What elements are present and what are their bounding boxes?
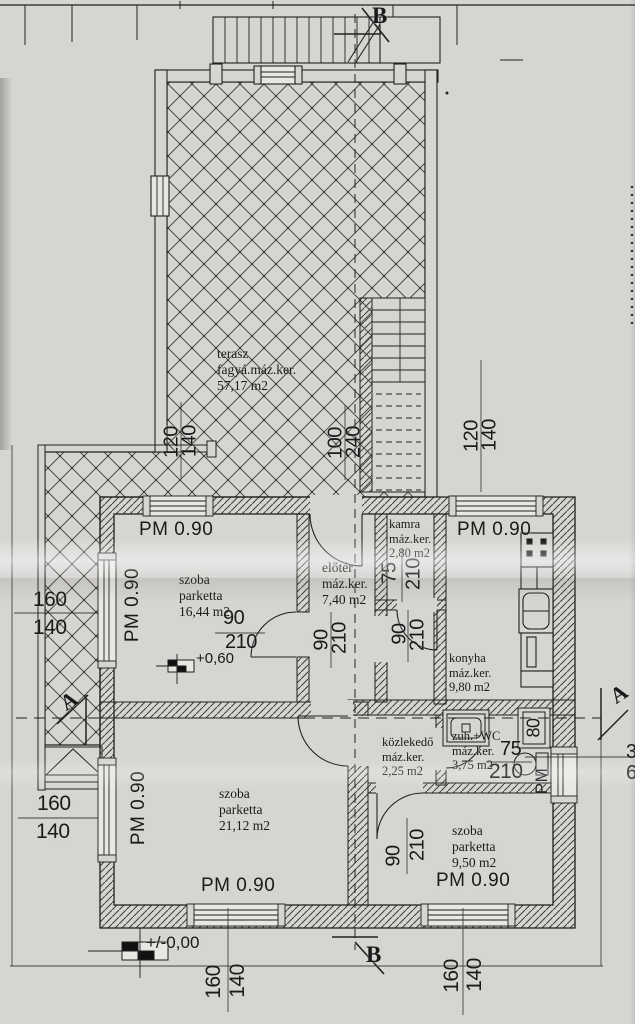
room-finish: máz.ker. — [322, 576, 368, 592]
parapet-label-left-lower: PM 0.90 — [128, 771, 150, 845]
edge-number-top: 3 — [626, 741, 635, 764]
room-area: 57,17 m2 — [217, 378, 296, 394]
level-marker-upper — [156, 654, 194, 684]
dim-240-entry: 240 — [343, 426, 366, 458]
room-area: 9,80 m2 — [449, 680, 491, 695]
dim-140-bottom-center: 140 — [226, 964, 250, 998]
garden-stairs — [360, 298, 425, 492]
parapet-label-right-short: PM — [532, 768, 552, 795]
room-label-kamra: kamra máz.ker. 2,80 m2 — [389, 517, 431, 561]
parapet-label-bottom-left: PM 0.90 — [201, 875, 275, 897]
room-area: 9,50 m2 — [452, 855, 496, 871]
dim-door-h-eloter: 210 — [329, 622, 352, 654]
room-label-eloter: előtér máz.ker. 7,40 m2 — [322, 560, 368, 608]
dim-basin-80: 80 — [524, 718, 545, 737]
room-label-kozlekedo: közlekedő máz.ker. 2,25 m2 — [382, 735, 433, 779]
room-name: konyha — [449, 651, 491, 666]
dim-160-left-lower: 160 — [37, 792, 71, 816]
room-area: 2,25 m2 — [382, 764, 433, 779]
room-finish: máz.ker. — [389, 532, 431, 547]
room-name: előtér — [322, 560, 368, 576]
room-area: 21,12 m2 — [219, 818, 270, 834]
dim-160-bottom-right: 160 — [440, 959, 464, 993]
level-label-upper: +0,60 — [196, 650, 234, 667]
dim-140-bottom-right: 140 — [463, 958, 487, 992]
dim-door-h-szoba-se: 210 — [407, 829, 430, 861]
room-label-terasz: terasz fagyá.máz.ker. 57,17 m2 — [217, 346, 296, 394]
room-finish: máz.ker. — [452, 744, 500, 759]
edge-number-bottom: 6 — [626, 762, 635, 785]
room-name: közlekedő — [382, 735, 433, 750]
room-name: terasz — [217, 346, 296, 362]
dim-door-w-szoba-nw: 90 — [223, 607, 244, 630]
room-name: szoba — [179, 572, 230, 588]
parapet-label-top-right: PM 0.90 — [457, 519, 531, 541]
dim-win-h-zuh: 210 — [489, 760, 523, 784]
dim-door-w-kamra: 75 — [379, 562, 402, 583]
top-stairs — [213, 17, 440, 63]
room-name: szoba — [219, 786, 270, 802]
floorplan-linework — [0, 0, 635, 1024]
level-label-ground: +/-0,00 — [146, 933, 199, 953]
room-finish: máz.ker. — [382, 750, 433, 765]
dim-win-w-zuh: 75 — [500, 738, 521, 761]
dim-door-w-szoba-se: 90 — [383, 845, 406, 866]
dim-140-left: 140 — [179, 425, 202, 457]
room-label-szoba-sw: szoba parketta 21,12 m2 — [219, 786, 270, 834]
room-finish: máz.ker. — [449, 666, 491, 681]
parapet-label-left-upper: PM 0.90 — [122, 568, 144, 642]
dim-140-left-upper: 140 — [33, 616, 67, 640]
scan-edge-artifact — [446, 92, 633, 331]
section-letter-b-top: B — [372, 3, 387, 29]
dim-160-bottom-center: 160 — [202, 965, 226, 999]
dim-140-left-lower: 140 — [36, 820, 70, 844]
kitchen-fixtures — [519, 533, 553, 687]
dim-160-left-upper: 160 — [33, 588, 67, 612]
dim-door-h-strip: 210 — [407, 619, 430, 651]
room-finish: parketta — [219, 802, 270, 818]
room-finish: fagyá.máz.ker. — [217, 362, 296, 378]
room-area: 7,40 m2 — [322, 592, 368, 608]
section-letter-b-bottom: B — [366, 942, 381, 968]
room-finish: parketta — [179, 588, 230, 604]
room-label-szoba-se: szoba parketta 9,50 m2 — [452, 823, 496, 871]
room-name: kamra — [389, 517, 431, 532]
room-label-konyha: konyha máz.ker. 9,80 m2 — [449, 651, 491, 695]
scanned-floorplan-page: terasz fagyá.máz.ker. 57,17 m2 szoba par… — [0, 0, 635, 1024]
room-name: zuh.+WC — [452, 729, 500, 744]
parapet-label-top-left: PM 0.90 — [139, 519, 213, 541]
dim-door-h-kamra: 210 — [403, 558, 426, 590]
parapet-label-bottom-right: PM 0.90 — [436, 870, 510, 892]
dim-140-right: 140 — [479, 419, 502, 451]
room-name: szoba — [452, 823, 496, 839]
room-finish: parketta — [452, 839, 496, 855]
